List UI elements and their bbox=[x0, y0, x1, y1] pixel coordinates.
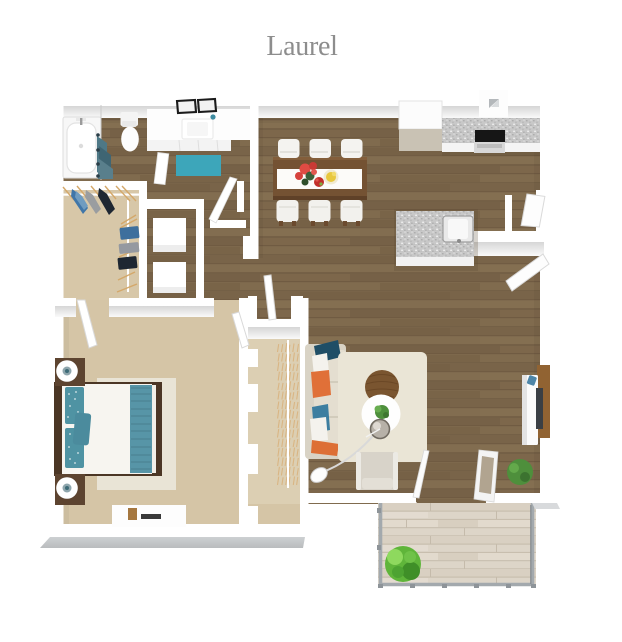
svg-text:Laurel: Laurel bbox=[266, 31, 338, 62]
